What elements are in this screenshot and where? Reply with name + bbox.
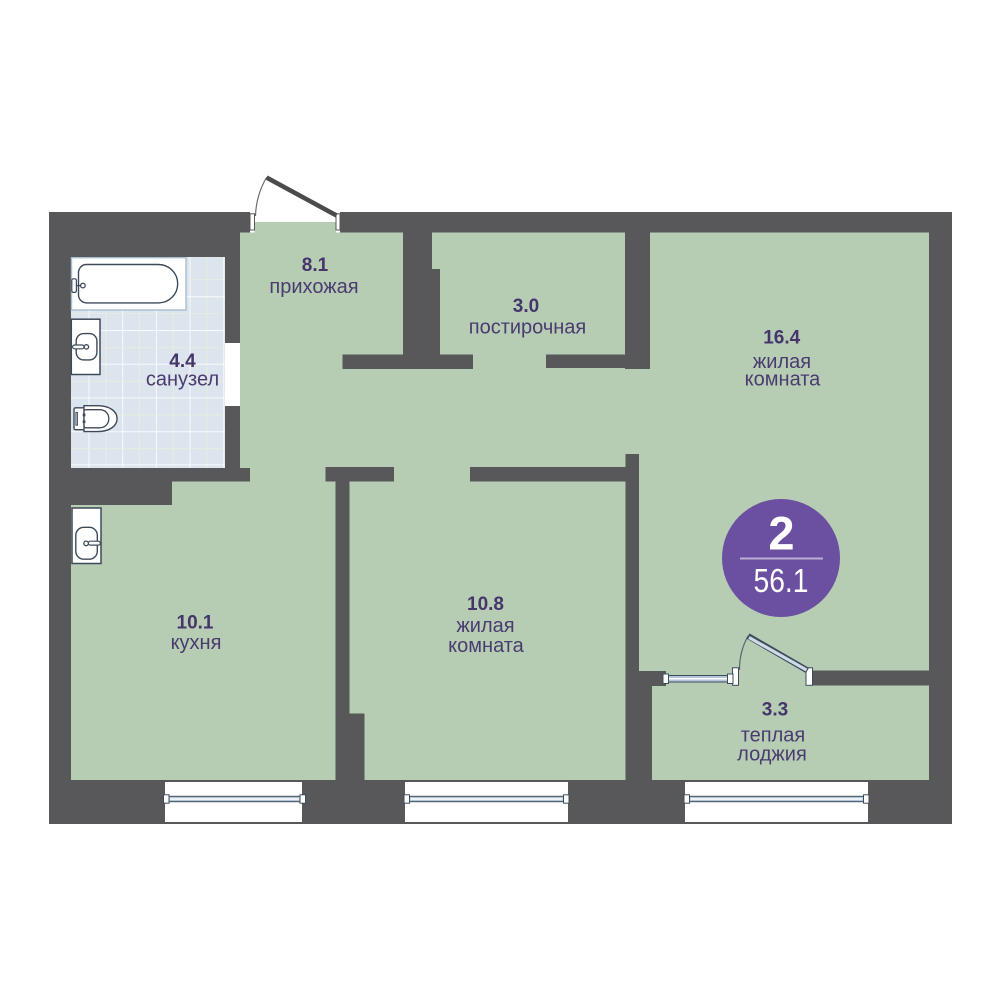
svg-text:лоджия: лоджия [737, 744, 807, 766]
svg-text:прихожая: прихожая [269, 276, 358, 298]
svg-text:комната: комната [745, 368, 822, 390]
svg-text:56.1: 56.1 [754, 562, 809, 599]
svg-text:постирочная: постирочная [469, 317, 587, 339]
svg-text:3.0: 3.0 [513, 296, 539, 317]
svg-text:жилая: жилая [456, 615, 514, 637]
svg-text:8.1: 8.1 [302, 255, 329, 276]
svg-text:кухня: кухня [171, 632, 222, 654]
svg-text:3.3: 3.3 [762, 700, 788, 721]
svg-text:комната: комната [448, 635, 525, 657]
svg-text:санузел: санузел [146, 369, 219, 391]
svg-text:16.4: 16.4 [763, 328, 800, 349]
svg-text:2: 2 [768, 507, 794, 560]
svg-text:10.8: 10.8 [467, 594, 504, 615]
svg-text:10.1: 10.1 [177, 613, 214, 634]
